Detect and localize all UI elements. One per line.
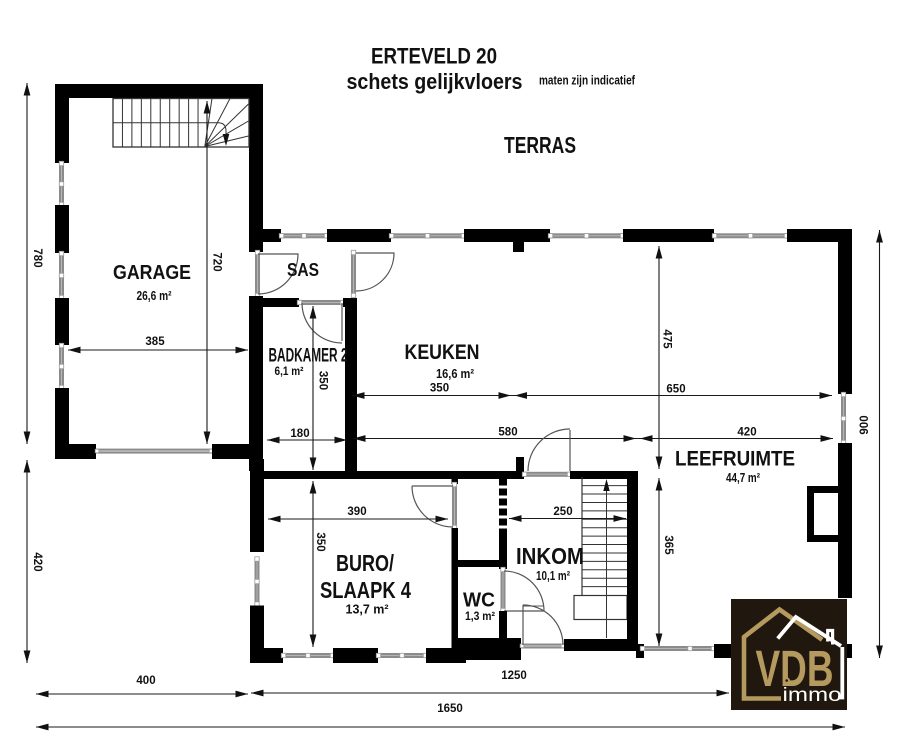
svg-text:250: 250 xyxy=(553,506,572,518)
svg-text:13,7 m²: 13,7 m² xyxy=(346,602,390,617)
svg-text:390: 390 xyxy=(347,506,366,518)
svg-text:650: 650 xyxy=(666,384,685,396)
svg-text:26,6 m²: 26,6 m² xyxy=(137,288,173,303)
svg-text:400: 400 xyxy=(136,675,155,687)
svg-text:TERRAS: TERRAS xyxy=(504,132,576,158)
svg-text:LEEFRUIMTE: LEEFRUIMTE xyxy=(675,448,795,471)
svg-text:6,1 m²: 6,1 m² xyxy=(275,364,304,378)
svg-text:KEUKEN: KEUKEN xyxy=(405,341,480,364)
svg-text:BURO/: BURO/ xyxy=(336,550,394,576)
svg-text:10,1 m²: 10,1 m² xyxy=(536,569,570,583)
svg-text:INKOM: INKOM xyxy=(516,543,584,569)
svg-text:475: 475 xyxy=(661,329,673,349)
svg-text:180: 180 xyxy=(290,428,309,440)
svg-text:GARAGE: GARAGE xyxy=(113,262,191,284)
svg-text:365: 365 xyxy=(662,535,674,555)
svg-text:ERTEVELD 20: ERTEVELD 20 xyxy=(371,44,497,69)
svg-text:350: 350 xyxy=(430,383,449,395)
svg-text:1250: 1250 xyxy=(501,670,527,682)
svg-text:720: 720 xyxy=(211,252,223,271)
svg-text:schets gelijkvloers: schets gelijkvloers xyxy=(347,69,523,94)
svg-text:16,6 m²: 16,6 m² xyxy=(436,366,475,381)
svg-text:420: 420 xyxy=(737,427,756,439)
svg-text:900: 900 xyxy=(859,415,871,434)
svg-text:580: 580 xyxy=(498,427,517,439)
svg-text:1650: 1650 xyxy=(437,703,463,715)
svg-text:350: 350 xyxy=(317,371,329,390)
svg-text:SAS: SAS xyxy=(287,259,319,280)
svg-text:maten zijn indicatief: maten zijn indicatief xyxy=(539,73,636,88)
svg-text:44,7 m²: 44,7 m² xyxy=(726,471,760,485)
svg-text:SLAAPK 4: SLAAPK 4 xyxy=(320,577,411,603)
svg-text:420: 420 xyxy=(31,552,43,571)
svg-text:385: 385 xyxy=(145,336,165,348)
svg-text:780: 780 xyxy=(31,248,43,267)
svg-text:350: 350 xyxy=(314,532,326,551)
svg-text:1,3 m²: 1,3 m² xyxy=(465,609,495,623)
svg-text:immo: immo xyxy=(783,685,842,706)
